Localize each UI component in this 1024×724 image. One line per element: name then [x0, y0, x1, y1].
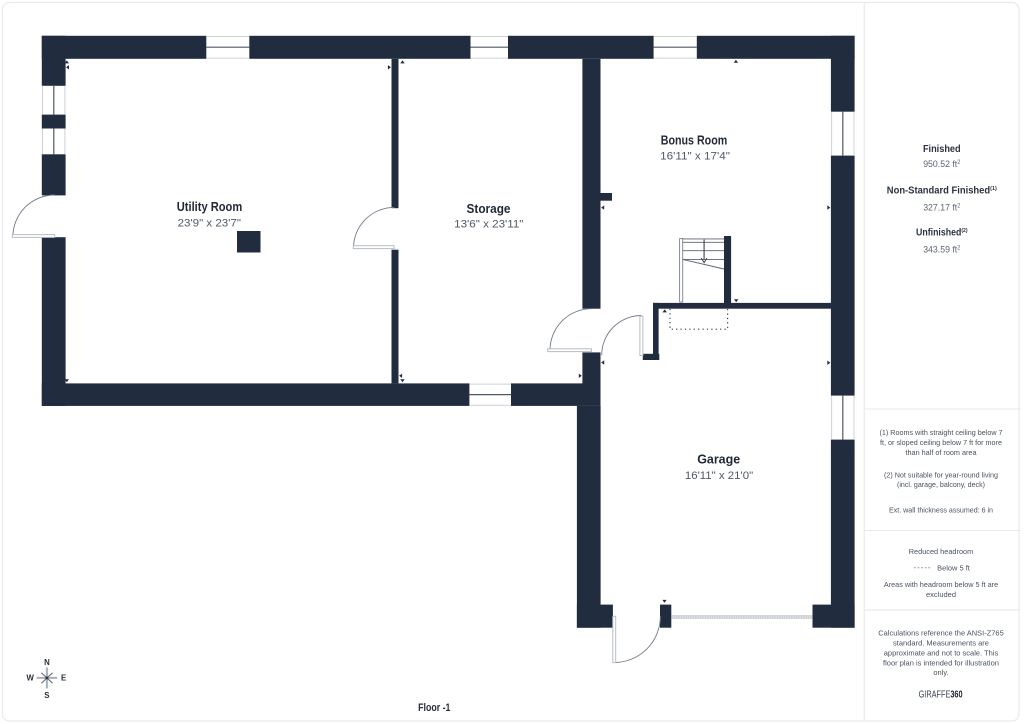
svg-text:Unfinished(2): Unfinished(2) [916, 228, 968, 239]
svg-text:327.17 ft2: 327.17 ft2 [923, 203, 961, 214]
svg-text:Utility Room: Utility Room [177, 199, 243, 214]
svg-text:GIRAFFE360: GIRAFFE360 [919, 690, 963, 701]
svg-text:16'11" x 21'0": 16'11" x 21'0" [685, 470, 753, 482]
svg-text:standard. Measurements are: standard. Measurements are [893, 639, 989, 648]
svg-text:(incl. garage, balcony, deck): (incl. garage, balcony, deck) [897, 480, 985, 489]
svg-text:950.52 ft2: 950.52 ft2 [923, 159, 961, 170]
svg-text:than half of room area: than half of room area [906, 448, 978, 457]
svg-text:Ext. wall thickness assumed: 6: Ext. wall thickness assumed: 6 in [889, 505, 993, 514]
svg-text:Calculations reference the ANS: Calculations reference the ANSI-Z765 [878, 629, 1004, 638]
svg-text:S: S [44, 691, 49, 700]
svg-text:343.59 ft2: 343.59 ft2 [923, 245, 961, 256]
svg-text:Areas with headroom below 5 ft: Areas with headroom below 5 ft are [884, 580, 998, 589]
svg-text:ft, or sloped ceiling below 7: ft, or sloped ceiling below 7 ft for mor… [880, 438, 1002, 447]
svg-text:Reduced headroom: Reduced headroom [909, 547, 974, 556]
svg-text:Bonus Room: Bonus Room [661, 133, 728, 148]
svg-text:W: W [27, 674, 35, 683]
svg-text:Non-Standard Finished(1): Non-Standard Finished(1) [887, 186, 997, 197]
svg-text:floor plan is intended for ill: floor plan is intended for illustration [883, 658, 999, 667]
svg-text:13'6" x 23'11": 13'6" x 23'11" [454, 218, 523, 230]
svg-text:approximate and not to scale.: approximate and not to scale. This [884, 648, 999, 657]
svg-text:(2) Not suitable for year-roun: (2) Not suitable for year-round living [884, 470, 998, 479]
svg-text:excluded: excluded [926, 590, 956, 599]
svg-text:(1) Rooms with straight ceilin: (1) Rooms with straight ceiling below 7 [880, 428, 1003, 437]
svg-text:N: N [44, 658, 50, 667]
svg-text:only.: only. [933, 668, 948, 677]
svg-text:Floor -1: Floor -1 [418, 702, 450, 714]
svg-text:Below 5 ft: Below 5 ft [937, 564, 971, 573]
svg-text:Garage: Garage [697, 451, 740, 466]
svg-text:16'11" x 17'4": 16'11" x 17'4" [660, 150, 730, 162]
svg-text:23'9" x 23'7": 23'9" x 23'7" [178, 218, 241, 230]
svg-text:Finished: Finished [923, 144, 961, 155]
svg-text:E: E [61, 674, 66, 683]
svg-text:Storage: Storage [467, 201, 511, 216]
